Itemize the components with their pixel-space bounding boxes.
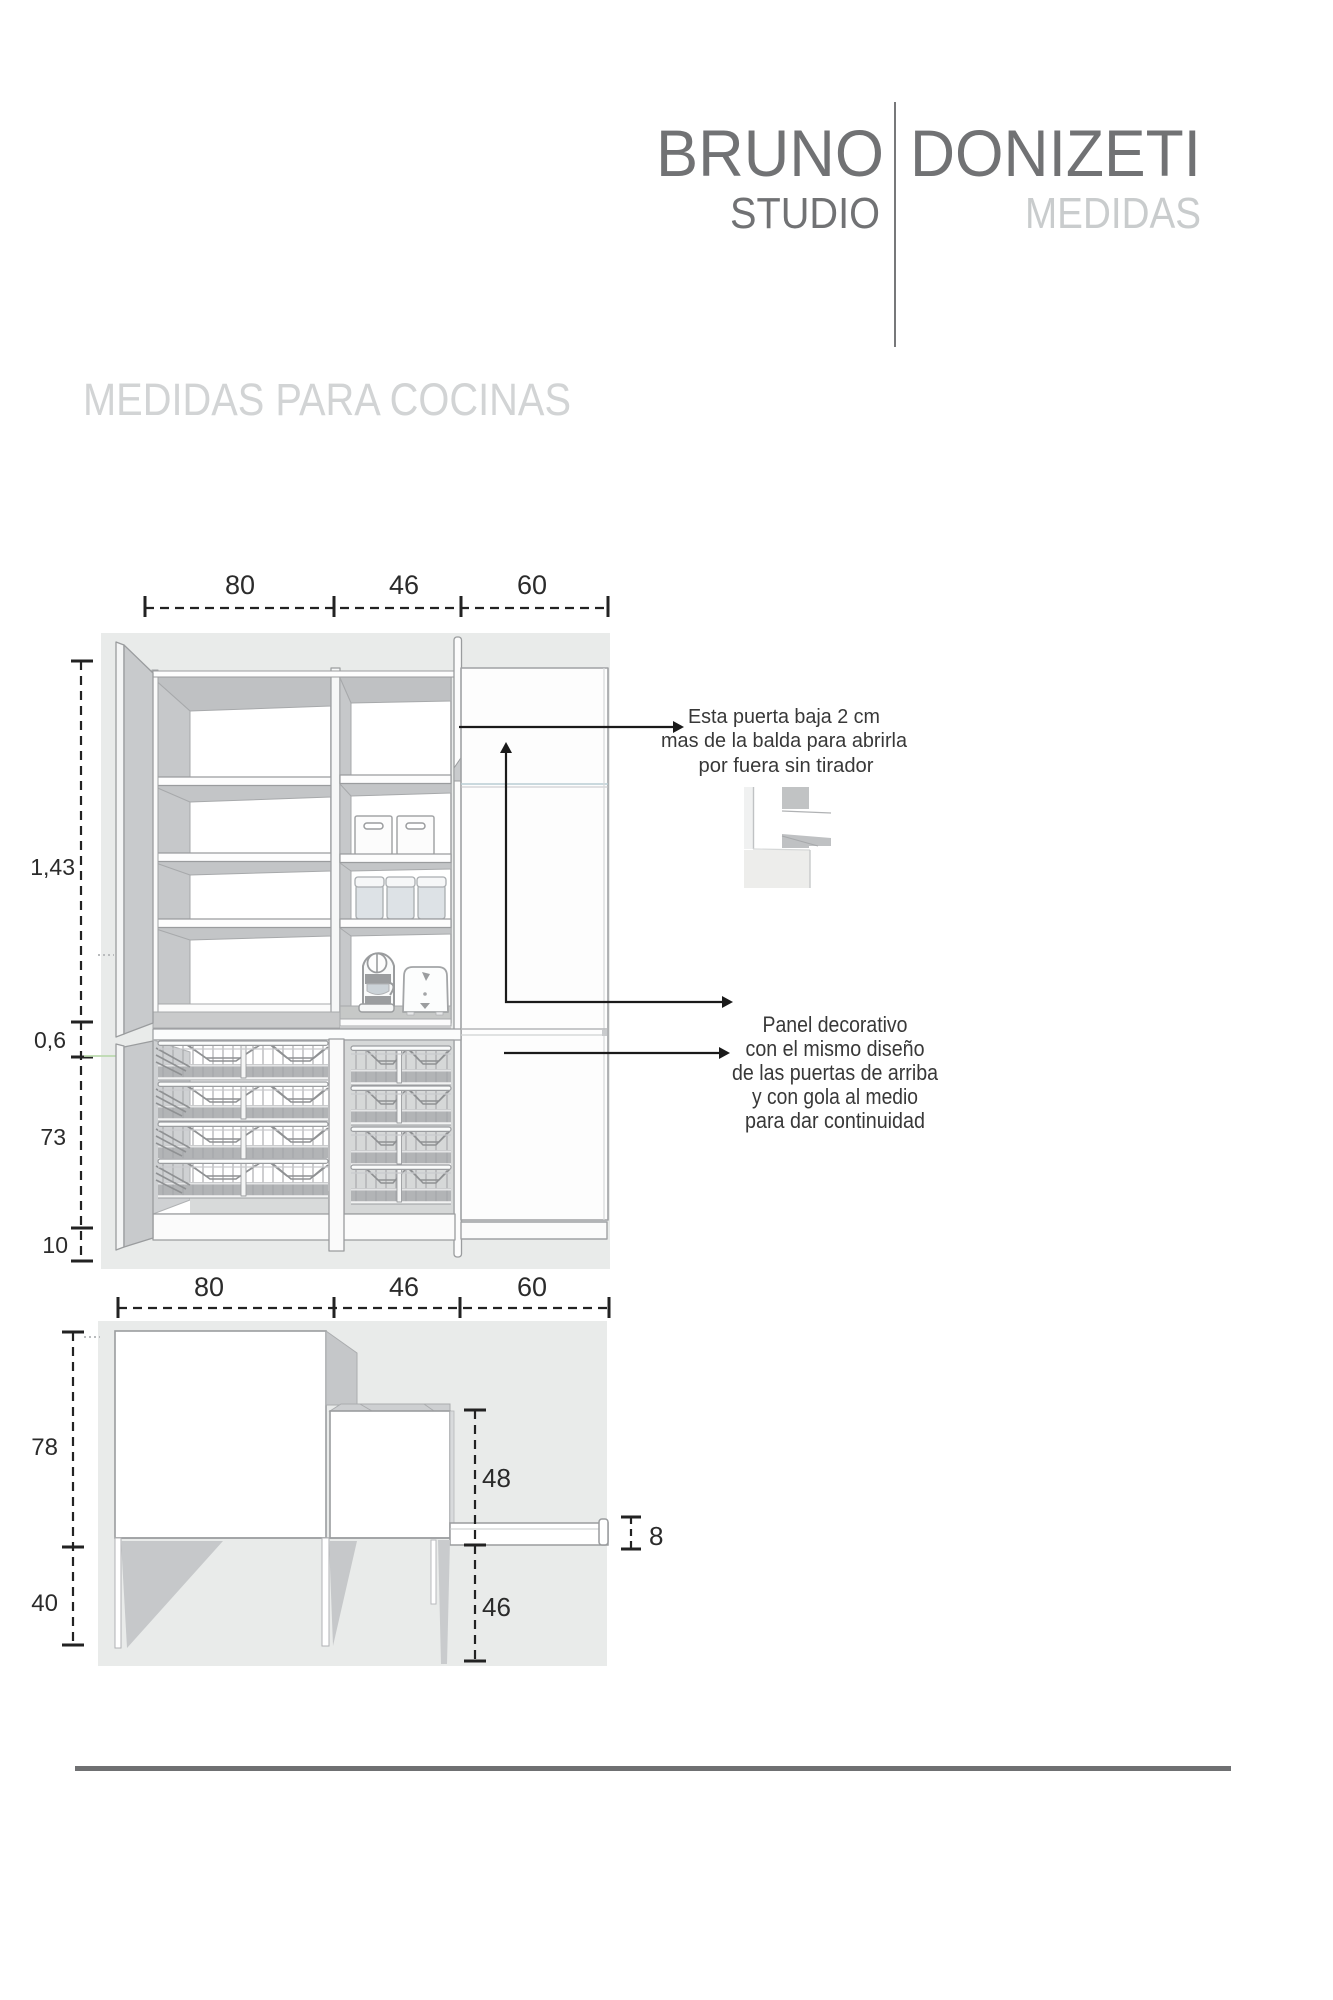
svg-text:por fuera sin tirador: por fuera sin tirador [699, 755, 874, 777]
svg-text:46: 46 [482, 1592, 511, 1622]
svg-text:10: 10 [42, 1232, 68, 1258]
svg-text:MEDIDAS: MEDIDAS [1025, 189, 1201, 238]
svg-text:de las puertas de arriba: de las puertas de arriba [732, 1060, 939, 1085]
svg-text:mas de la balda para abrirla: mas de la balda para abrirla [661, 730, 908, 752]
svg-text:BRUNO: BRUNO [656, 116, 884, 190]
svg-text:8: 8 [649, 1521, 663, 1551]
svg-text:73: 73 [40, 1124, 66, 1150]
svg-text:con el mismo diseño: con el mismo diseño [746, 1036, 925, 1061]
svg-text:60: 60 [517, 1272, 547, 1302]
svg-text:DONIZETI: DONIZETI [910, 116, 1201, 190]
svg-text:48: 48 [482, 1463, 511, 1493]
svg-text:80: 80 [194, 1272, 224, 1302]
svg-text:40: 40 [31, 1590, 58, 1617]
svg-text:STUDIO: STUDIO [730, 189, 880, 238]
svg-text:para dar continuidad: para dar continuidad [745, 1108, 925, 1133]
svg-text:MEDIDAS PARA COCINAS: MEDIDAS PARA COCINAS [83, 374, 571, 425]
svg-text:78: 78 [31, 1434, 58, 1461]
svg-text:Panel decorativo: Panel decorativo [763, 1012, 908, 1037]
svg-text:0,6: 0,6 [34, 1027, 66, 1053]
svg-text:60: 60 [517, 570, 547, 600]
svg-text:y con gola al medio: y con gola al medio [752, 1084, 918, 1109]
svg-text:46: 46 [389, 570, 419, 600]
svg-text:46: 46 [389, 1272, 419, 1302]
svg-text:80: 80 [225, 570, 255, 600]
svg-text:1,43: 1,43 [30, 854, 75, 880]
svg-text:Esta puerta baja 2 cm: Esta puerta baja 2 cm [688, 706, 880, 728]
